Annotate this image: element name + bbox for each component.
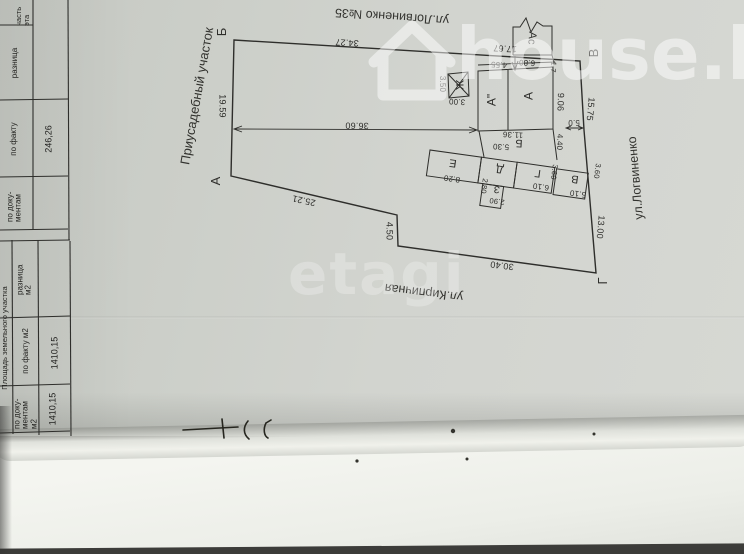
- housekg-watermark: house.kg: [456, 12, 744, 96]
- document-photo: часть эта разница по факту 246,26 по док…: [0, 0, 744, 554]
